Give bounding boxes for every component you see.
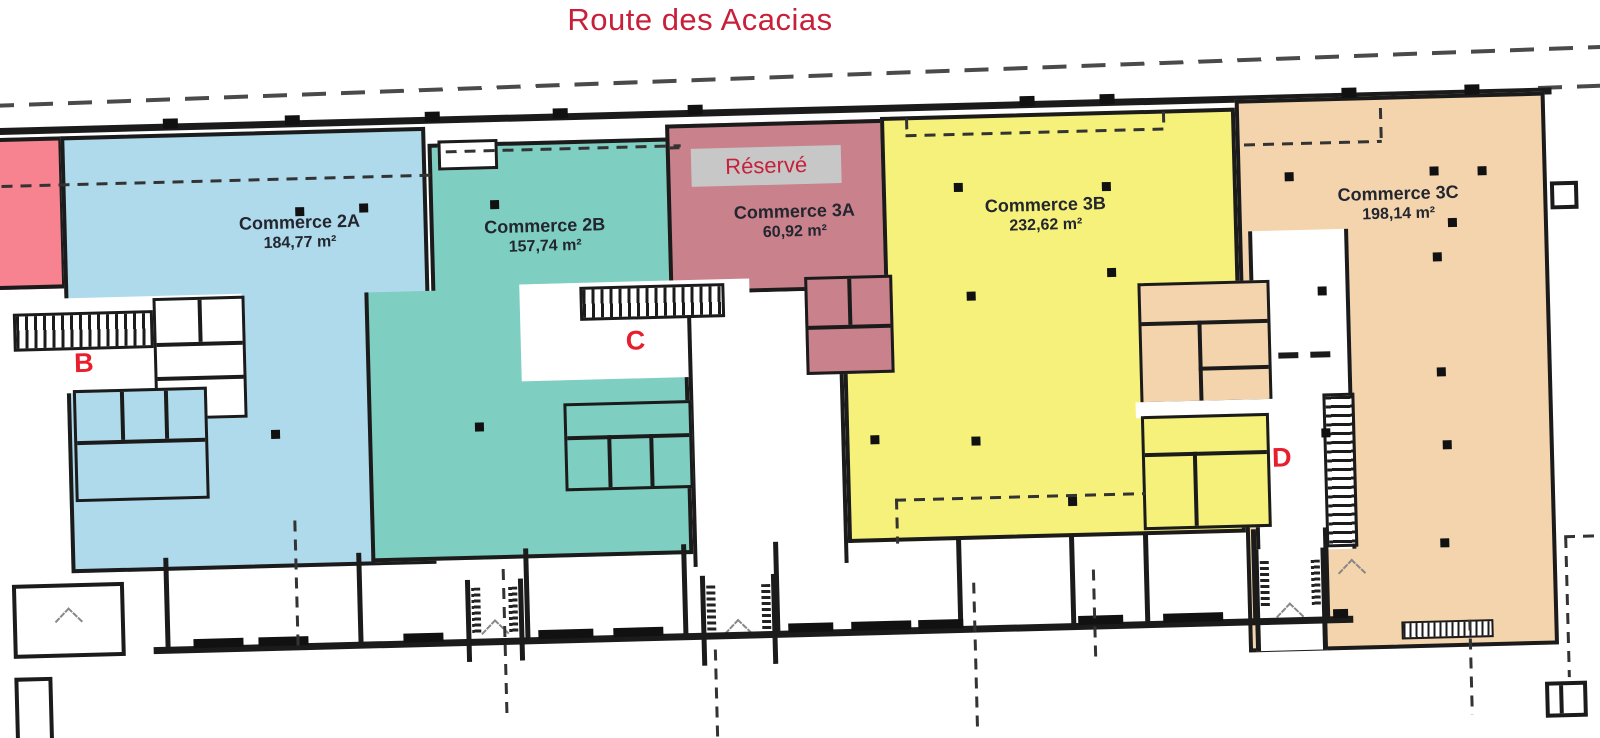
column-dot: [954, 183, 963, 192]
pilaster: [425, 111, 440, 121]
pilaster: [688, 105, 703, 115]
pilaster: [1341, 87, 1356, 97]
column-dot: [1443, 440, 1452, 449]
exterior-duct: [1550, 181, 1579, 210]
column-dot: [967, 292, 976, 301]
street-name: Route des Acacias: [0, 2, 1400, 38]
column-dot: [1285, 172, 1294, 181]
entrance-vestibule-1: [465, 578, 525, 661]
unit-name: Commerce 3C: [1337, 182, 1459, 206]
unit-area: 232,62 m²: [985, 214, 1107, 236]
facade-window: [1078, 615, 1123, 625]
stair-b: [13, 310, 154, 352]
column-dot: [475, 422, 484, 431]
facade-window: [613, 627, 663, 637]
door-swing-mark: [55, 607, 83, 635]
pilaster: [1019, 96, 1034, 106]
pilaster: [1099, 94, 1114, 104]
corner-box: [14, 677, 54, 738]
unit-area: 60,92 m²: [734, 221, 856, 243]
reserved-badge: Réservé: [691, 145, 842, 187]
door-opening-mark: [1278, 352, 1298, 359]
column-dot: [870, 435, 879, 444]
entrance-box-left: [12, 582, 126, 659]
label-commerce-3a: Commerce 3A 60,92 m²: [734, 200, 856, 243]
column-dot: [295, 207, 304, 216]
pilaster: [163, 118, 178, 128]
stair-letter-b: B: [74, 348, 94, 379]
facade-window: [788, 622, 833, 632]
label-commerce-3b: Commerce 3B 232,62 m²: [985, 193, 1107, 236]
column-dot: [1429, 166, 1438, 175]
entrance-vestibule-2: [700, 574, 778, 666]
stair-letter-d: D: [1272, 442, 1292, 473]
rooms-commerce-3a-sub: [804, 275, 895, 375]
label-commerce-2a: Commerce 2A 184,77 m²: [239, 211, 361, 254]
facade-window: [851, 620, 911, 631]
stair-c: [579, 283, 725, 321]
rooms-commerce-2b-sub: [563, 400, 693, 491]
exterior-shaft: [1545, 681, 1588, 718]
facade-window: [538, 629, 593, 639]
label-commerce-2b: Commerce 2B 157,74 m²: [484, 214, 606, 257]
dashed-axis-line: [1564, 534, 1600, 538]
rooms-commerce-3c-sub: [1137, 280, 1272, 405]
unit-name: Commerce 2B: [484, 214, 606, 238]
column-dot: [971, 436, 980, 445]
column-dot: [490, 200, 499, 209]
dashed-line: [669, 146, 687, 149]
column-dot: [1102, 182, 1111, 191]
door-opening-mark: [1310, 351, 1330, 358]
pilaster: [553, 108, 568, 118]
dashed-line: [905, 118, 908, 134]
rooms-commerce-2a-sub: [73, 387, 210, 502]
rooms-commerce-3b-sub: [1141, 413, 1272, 530]
column-dot: [1477, 166, 1486, 175]
pilaster: [1464, 84, 1479, 94]
facade-window: [193, 638, 243, 648]
stair-letter-c: C: [625, 325, 645, 356]
column-dot: [1440, 538, 1449, 547]
column-dot: [271, 430, 280, 439]
facade-window: [258, 636, 308, 646]
column-dot: [359, 203, 368, 212]
column-dot: [1448, 218, 1457, 227]
entrance-vestibule-d: [1253, 547, 1328, 651]
column-dot: [1437, 367, 1446, 376]
building-plan: Réservé Commerce 2A 184,77 m² Commerce 2…: [0, 88, 1600, 738]
entrance-grille: [1401, 619, 1493, 639]
column-dot: [1068, 497, 1077, 506]
column-dot: [1321, 428, 1330, 437]
unit-area: 184,77 m²: [239, 232, 361, 254]
column-dot: [1107, 268, 1116, 277]
unit-area: 198,14 m²: [1338, 203, 1460, 225]
unit-name: Commerce 3A: [734, 200, 856, 224]
dashed-axis-line: [1564, 537, 1571, 677]
floor-plan: Route des Acacias: [0, 0, 1600, 738]
facade-window: [918, 619, 963, 629]
unit-area: 157,74 m²: [484, 235, 606, 257]
facade-window: [403, 633, 443, 643]
stair-d: [1322, 393, 1358, 548]
unit-name: Commerce 3B: [985, 193, 1107, 217]
pilaster: [285, 115, 300, 125]
zone-pink-partial: [0, 136, 66, 290]
dashed-line: [1162, 111, 1165, 127]
facade-window: [1163, 612, 1223, 623]
column-dot: [1433, 252, 1442, 261]
facade-window: [1333, 609, 1348, 618]
wall-notch: [437, 139, 498, 171]
label-commerce-3c: Commerce 3C 198,14 m²: [1337, 182, 1459, 225]
zone-commerce-3b-extension: [843, 357, 896, 543]
column-dot: [1318, 286, 1327, 295]
